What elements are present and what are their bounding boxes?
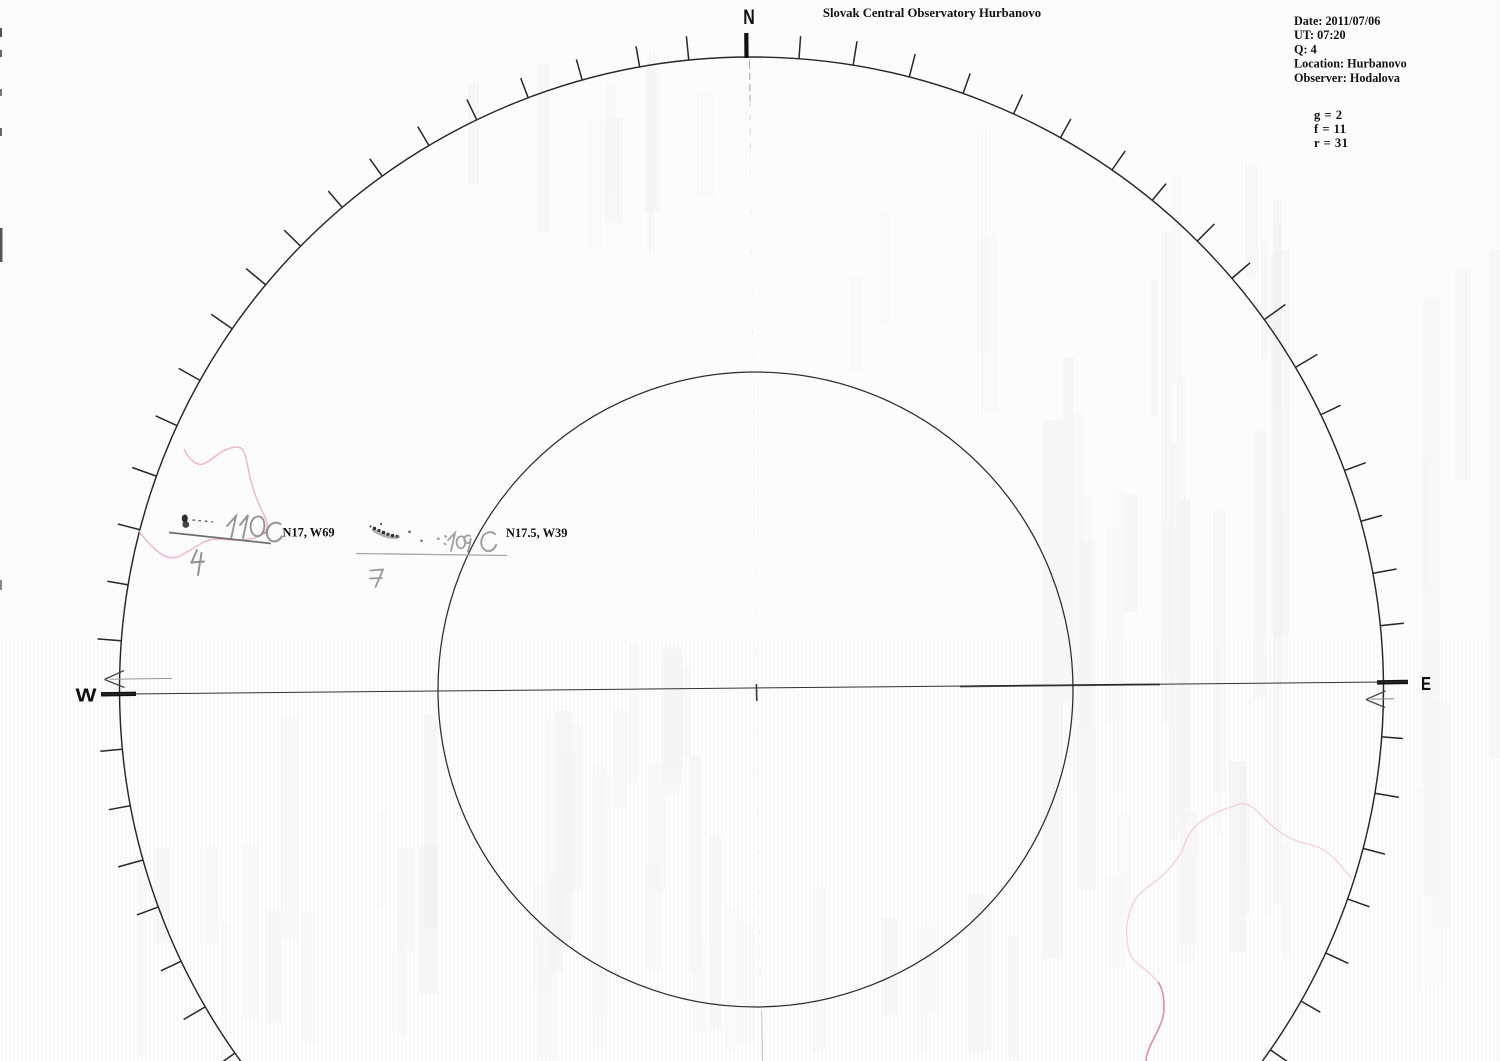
svg-text:Location: Hurbanovo: Location: Hurbanovo: [1294, 57, 1407, 71]
svg-text:Q: 4: Q: 4: [1294, 42, 1317, 56]
svg-text:Observer: Hodalova: Observer: Hodalova: [1294, 71, 1400, 85]
svg-text:N17, W69: N17, W69: [283, 525, 335, 539]
svg-text:UT: 07:20: UT: 07:20: [1294, 28, 1346, 42]
svg-text:g = 2: g = 2: [1314, 108, 1343, 122]
svg-text:Date: 2011/07/06: Date: 2011/07/06: [1294, 14, 1380, 28]
svg-text:f = 11: f = 11: [1314, 122, 1347, 136]
svg-text:E: E: [1421, 673, 1431, 694]
svg-text:N: N: [743, 6, 755, 29]
svg-text:N17.5, W39: N17.5, W39: [506, 526, 567, 540]
svg-text:r = 31: r = 31: [1314, 136, 1348, 150]
svg-text:W: W: [76, 685, 98, 706]
svg-text:Slovak Central Observatory Hur: Slovak Central Observatory Hurbanovo: [823, 6, 1041, 20]
